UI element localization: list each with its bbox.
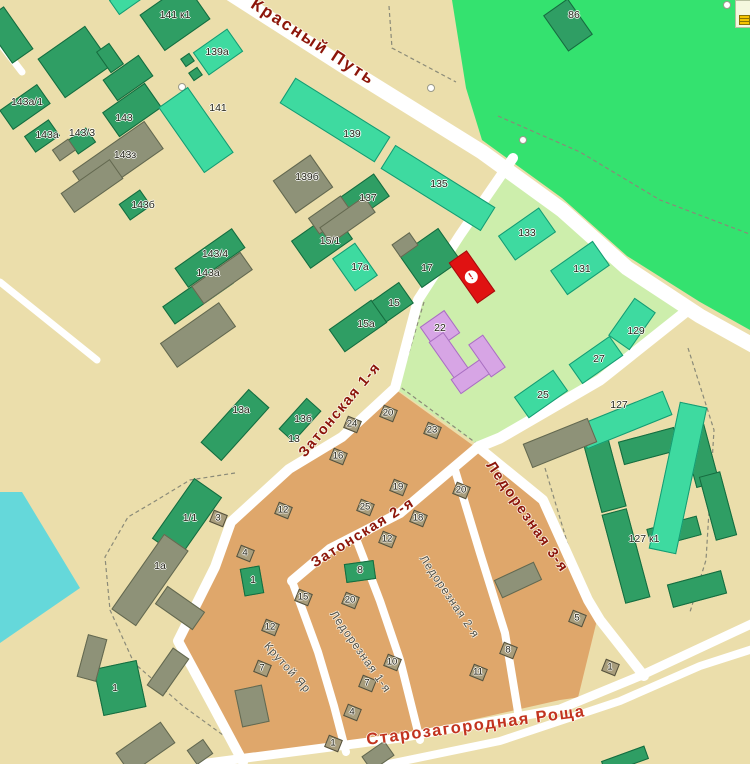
building-number-label: 143 [115, 112, 133, 124]
building-number-label: 13б [294, 413, 312, 425]
building-number-label: 137 [359, 192, 377, 204]
building-number-label: 143а/1 [11, 96, 43, 108]
building-number-label: 15 [388, 297, 400, 309]
building-number-label: 139а [205, 46, 228, 58]
building-number-label: 15а [357, 318, 375, 330]
plot-number-label: 10 [387, 657, 398, 668]
plot-number-label: 12 [265, 622, 276, 633]
building-number-label: 86 [568, 9, 580, 21]
plot-number-label: 15 [298, 592, 309, 603]
building-number-label: 15/1 [320, 235, 340, 247]
plot-number-label: 7 [364, 678, 369, 689]
building-number-label: 127 к1 [629, 533, 660, 545]
plot-number-label: 8 [505, 645, 510, 656]
building-number-label: 139 [343, 128, 361, 140]
building-number-label: 141 к1 [160, 9, 191, 21]
building-number-label: 143/4 [202, 248, 228, 260]
building-number-label: 139б [295, 171, 319, 183]
building-number-label: 135 [430, 178, 448, 190]
plot-number-label: 1 [330, 738, 335, 749]
building-number-label: 143а [196, 267, 219, 279]
building-number-label: 22 [434, 322, 446, 334]
building-number-label: 141 [209, 102, 227, 114]
plot-number-label: 16 [333, 451, 344, 462]
building-number-label: 13 [288, 433, 300, 445]
map-canvas[interactable]: ! 20242316192025181212152012107711415813… [0, 0, 750, 764]
plot-number-label: 4 [349, 707, 354, 718]
plot-number-label: 24 [347, 419, 358, 430]
plot-number-label: 12 [382, 534, 393, 545]
poi-dot[interactable] [724, 2, 731, 9]
building-number-label: 1/1 [183, 512, 198, 524]
building-number-label: 1а [154, 560, 166, 572]
boundary-dashed-line [389, 6, 456, 82]
plot-number-label: 20 [456, 485, 467, 496]
building-number-label: 143а [35, 129, 58, 141]
building-number-label: 143з [114, 149, 136, 161]
plot-number-label: 4 [242, 548, 247, 559]
plot-number-label: 1 [607, 662, 612, 673]
building-number-label: 13а [232, 404, 250, 416]
building-number-label: 131 [573, 263, 591, 275]
selected-building-marker-icon: ! [462, 268, 480, 286]
kiosk-icon [739, 15, 750, 25]
building-number-label: 143/3 [69, 127, 95, 139]
building-number-label: 8 [357, 564, 363, 576]
building-number-label: 1 [250, 574, 256, 586]
area-water [0, 492, 80, 643]
building-number-label: 129 [627, 325, 645, 337]
plot-number-label: 5 [574, 613, 579, 624]
plot-number-label: 7 [259, 663, 264, 674]
plot-number-label: 23 [427, 425, 438, 436]
poi-dot[interactable] [428, 85, 435, 92]
plot-number-label: 20 [345, 595, 356, 606]
building-number-label: 17а [351, 261, 369, 273]
building-number-label: 17 [421, 262, 433, 274]
plot-number-label: 11 [473, 667, 483, 678]
plot-number-label: 18 [413, 513, 424, 524]
building-number-label: 1 [112, 682, 118, 694]
road-stub-west[interactable] [0, 282, 97, 360]
building-number-label: 143б [131, 199, 155, 211]
plot-number-label: 25 [360, 502, 371, 513]
poi-dot[interactable] [520, 137, 527, 144]
plot-number-label: 20 [383, 408, 394, 419]
plot-number-label: 12 [278, 505, 289, 516]
building-number-label: 27 [593, 353, 605, 365]
plot-number-label: 3 [215, 513, 220, 524]
building-number-label: 133 [518, 227, 536, 239]
building-number-label: 127 [610, 399, 628, 411]
corner-popup[interactable] [735, 0, 750, 28]
building-number-label: 25 [537, 389, 549, 401]
plot-number-label: 19 [393, 482, 404, 493]
